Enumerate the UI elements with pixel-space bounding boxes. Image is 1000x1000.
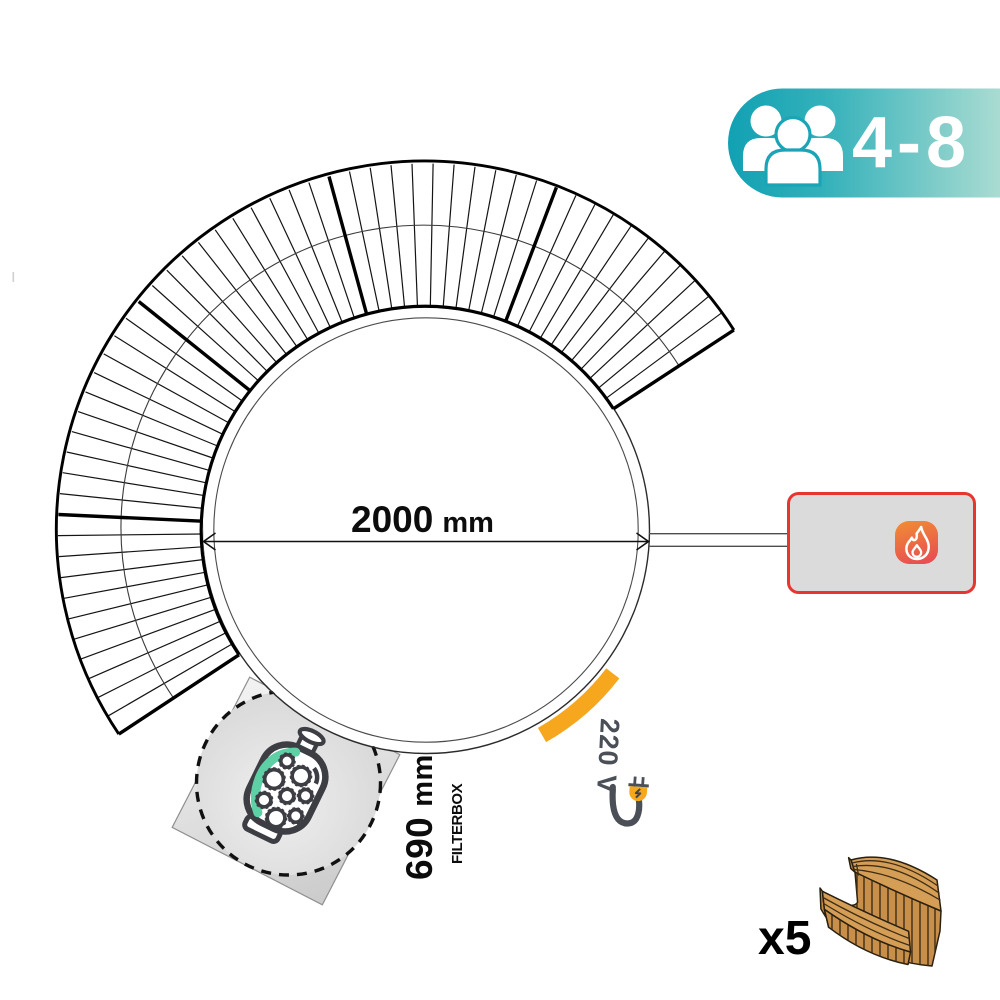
svg-text:220 V: 220 V [591, 718, 625, 795]
svg-text:x5: x5 [758, 912, 811, 965]
svg-text:FILTERBOX: FILTERBOX [449, 783, 466, 864]
svg-text:4-8: 4-8 [852, 103, 971, 183]
